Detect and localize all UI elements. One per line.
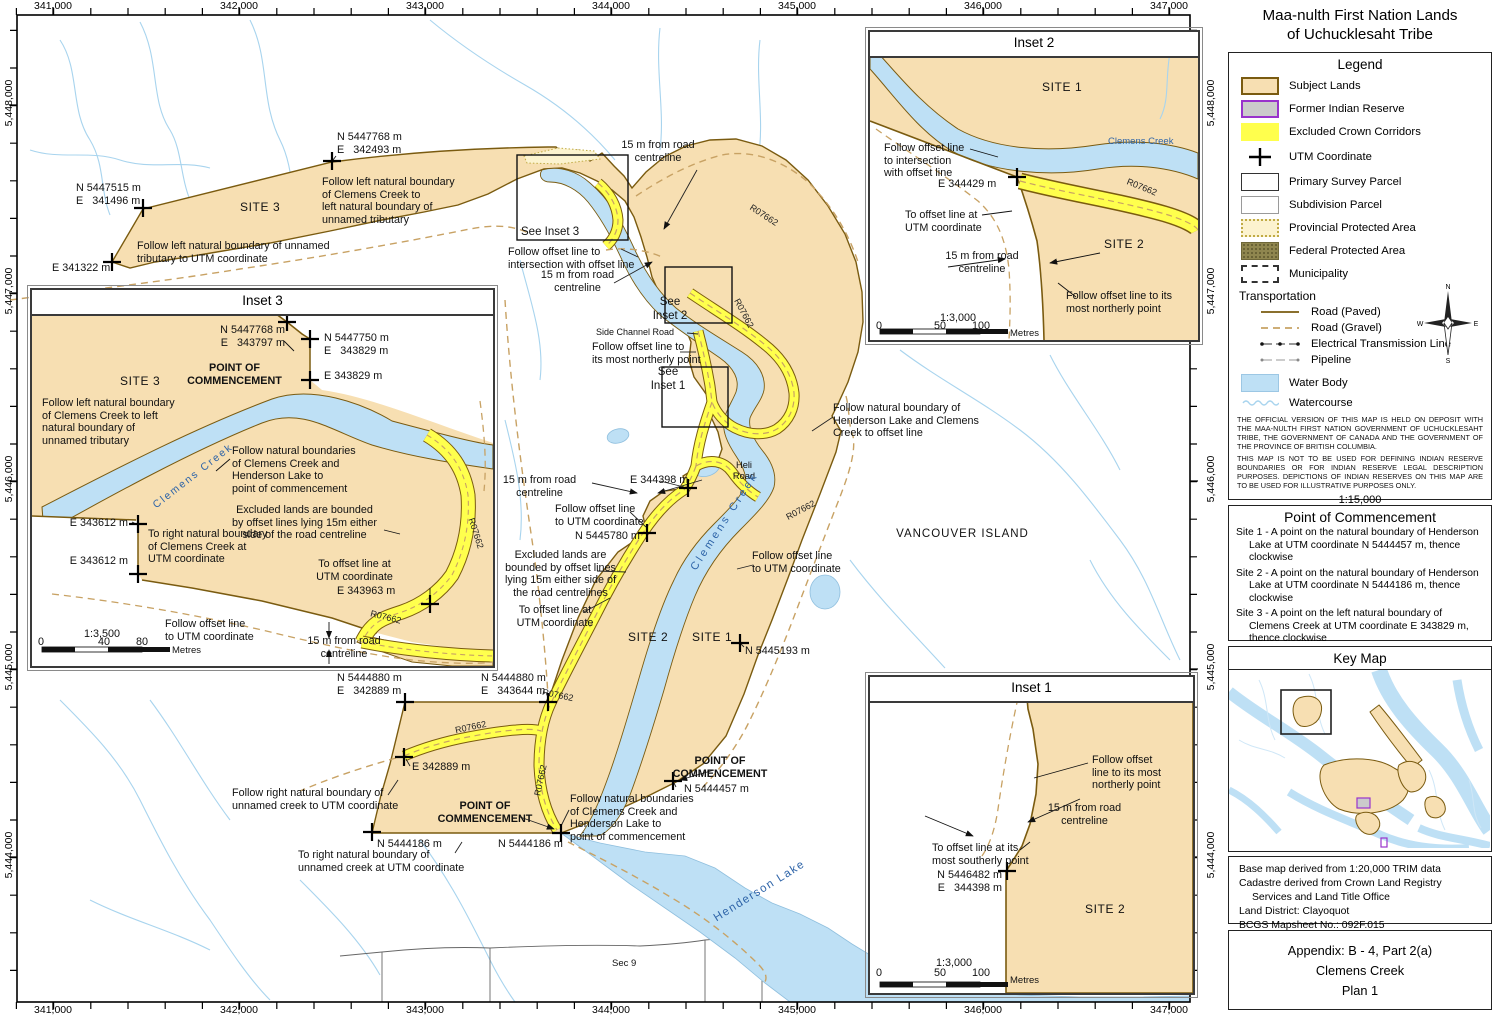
note-to-offset-utm: To offset line at UTM coordinate	[505, 604, 605, 629]
inset3-title: Inset 3	[32, 290, 493, 316]
x-tick: 342,000	[209, 1004, 269, 1016]
note-15m: 15 m from road centreline	[294, 635, 394, 660]
note-to-offset: To offset line at UTM coordinate	[287, 558, 422, 583]
see-inset1-label: See Inset 1	[648, 366, 688, 393]
base-info-line: Land District: Clayoquot	[1239, 905, 1483, 919]
utm-label: N 5445193 m	[745, 645, 810, 658]
appendix-line2: Clemens Creek	[1229, 961, 1491, 981]
legend-item-label: Former Indian Reserve	[1289, 103, 1405, 115]
legend-item-label: Road (Paved)	[1311, 306, 1381, 318]
utm-label: N 5447515 m E 341496 m	[76, 182, 141, 207]
disclaimer-1: THE OFFICIAL VERSION OF THIS MAP IS HELD…	[1229, 412, 1491, 451]
poc-label: POINT OF COMMENCEMENT	[172, 362, 297, 387]
y-tick: 5,446,000	[3, 449, 15, 509]
inset1-canvas	[870, 698, 1193, 993]
note-follow-offset: Follow offset line to UTM coordinate	[165, 618, 254, 643]
utm-label: E 343963 m	[337, 585, 395, 598]
legend-item-label: Water Body	[1289, 377, 1348, 389]
key-map-title: Key Map	[1229, 647, 1491, 670]
legend-item-label: Pipeline	[1311, 354, 1351, 366]
sec9-label: Sec 9	[612, 958, 636, 969]
site1-label: SITE 1	[692, 630, 732, 644]
legend-item-label: Municipality	[1289, 268, 1348, 280]
x-tick: 346,000	[953, 1004, 1013, 1016]
note-follow-nat: Follow natural boundaries of Clemens Cre…	[232, 445, 356, 496]
base-info-line: Base map derived from 1:20,000 TRIM data	[1239, 863, 1483, 877]
note-excluded: Excluded lands are bounded by offset lin…	[217, 504, 392, 542]
note-follow-int: Follow offset line to intersection with …	[884, 142, 964, 180]
y-tick: 5,445,000	[1205, 637, 1217, 697]
subject-lands-swatch	[1241, 77, 1279, 95]
utm-label: E 343829 m	[324, 370, 382, 383]
svg-text:W: W	[1417, 321, 1424, 328]
utm-label: E 344429 m	[938, 178, 996, 191]
legend-item-subject-lands: Subject Lands	[1229, 74, 1491, 97]
legend-item-water-body: Water Body	[1229, 368, 1491, 395]
clemens-creek-label: Clemens Creek	[1108, 136, 1173, 147]
utm-label: N 5444880 m E 342889 m	[337, 672, 402, 697]
utm-label: N 5444880 m E 343644 m	[481, 672, 546, 697]
excluded-corridor-swatch	[1241, 123, 1279, 141]
y-tick: 5,446,000	[1205, 449, 1217, 509]
scale-ratio: 1:15,000	[1229, 490, 1491, 506]
base-info-line: Cadastre derived from Crown Land Registr…	[1239, 877, 1483, 891]
y-tick: 5,447,000	[1205, 261, 1217, 321]
note-excluded-lands: Excluded lands are bounded by offset lin…	[498, 549, 623, 600]
note-follow-left: Follow left natural boundary of Clemens …	[42, 397, 175, 448]
provincial-area-swatch	[1241, 219, 1279, 237]
map-title: Maa-nulth First Nation Lands of Uchuckle…	[1228, 6, 1492, 44]
note-follow-offset-int: Follow offset line to intersection with …	[508, 246, 634, 271]
x-tick: 341,000	[23, 1004, 83, 1016]
note-follow-offset-north: Follow offset line to its most northerly…	[592, 341, 701, 366]
site2-label: SITE 2	[628, 630, 668, 644]
sec9-parcel-lines	[340, 939, 762, 1002]
disclaimer-2: THIS MAP IS NOT TO BE USED FOR DEFINING …	[1229, 451, 1491, 490]
paved-road-icon	[1259, 309, 1301, 315]
poc-title: Point of Commencement	[1229, 506, 1491, 527]
appendix-line3: Plan 1	[1229, 981, 1491, 1001]
x-tick: 345,000	[767, 0, 827, 12]
x-tick: 346,000	[953, 0, 1013, 12]
note-15m: 15 m from road centreline	[1032, 802, 1137, 827]
x-tick: 347,000	[1139, 0, 1199, 12]
legend-item-primary-parcel: Primary Survey Parcel	[1229, 170, 1491, 193]
legend-panel: Legend Subject Lands Former Indian Reser…	[1228, 52, 1492, 500]
y-tick: 5,444,000	[1205, 825, 1217, 885]
municipality-swatch	[1241, 265, 1279, 283]
legend-item-watercourse: Watercourse	[1229, 395, 1491, 412]
note-to-offset: To offset line at UTM coordinate	[905, 209, 982, 234]
legend-item-label: UTM Coordinate	[1289, 151, 1372, 163]
site1-label: SITE 1	[1042, 80, 1082, 94]
legend-item-federal-area: Federal Protected Area	[1229, 239, 1491, 262]
watercourse-icon	[1241, 398, 1279, 408]
legend-item-label: Excluded Crown Corridors	[1289, 126, 1421, 138]
vancouver-island-label: VANCOUVER ISLAND	[895, 528, 1030, 542]
note-follow-left-clemens: Follow left natural boundary of Clemens …	[322, 176, 455, 227]
utm-label: E 344398 m	[630, 474, 688, 487]
poc-site1: Site 1 - A point on the natural boundary…	[1229, 527, 1491, 568]
note-15m: 15 m from road centreline	[608, 139, 708, 164]
site3-label: SITE 3	[240, 200, 280, 214]
legend-item-label: Watercourse	[1289, 397, 1353, 409]
primary-parcel-swatch	[1241, 173, 1279, 191]
scale-tick: 100	[972, 320, 990, 333]
utm-label: E 342889 m	[412, 761, 470, 774]
note-15m: 15 m from road centreline	[932, 250, 1032, 275]
legend-item-label: Road (Gravel)	[1311, 322, 1382, 334]
svg-text:S: S	[1446, 358, 1451, 365]
poc-site3: Site 3 - A point on the left natural bou…	[1229, 608, 1491, 649]
scale-tick: 0	[38, 636, 44, 649]
legend-item-label: Provincial Protected Area	[1289, 222, 1416, 234]
legend-item-provincial-area: Provincial Protected Area	[1229, 216, 1491, 239]
note-follow-left-unnamed: Follow left natural boundary of unnamed …	[137, 240, 330, 265]
x-tick: 347,000	[1139, 1004, 1199, 1016]
note-follow-nat-hend: Follow natural boundary of Henderson Lak…	[833, 402, 979, 440]
poc-label: POINT OF COMMENCEMENT	[425, 800, 545, 825]
poc-panel: Point of Commencement Site 1 - A point o…	[1228, 505, 1492, 641]
appendix-line1: Appendix: B - 4, Part 2(a)	[1229, 941, 1491, 961]
note-to-offset: To offset line at its most southerly poi…	[932, 842, 1029, 867]
y-tick: 5,447,000	[3, 261, 15, 321]
x-tick: 343,000	[395, 1004, 455, 1016]
note-15m: 15 m from road centreline	[492, 474, 587, 499]
y-tick: 5,448,000	[1205, 73, 1217, 133]
utm-label: E 343612 m	[60, 555, 128, 568]
scale-tick: 50	[934, 967, 946, 980]
note-follow-offset-utm: Follow offset line to UTM coordinate	[752, 550, 841, 575]
utm-label: N 5446482 m E 344398 m	[926, 869, 1002, 894]
utm-label: N 5447768 m E 343797 m	[207, 324, 285, 349]
x-tick: 343,000	[395, 0, 455, 12]
note-follow-offset: Follow offset line to its most northerly…	[1092, 754, 1161, 792]
note-to-right-unnamed: To right natural boundary of unnamed cre…	[298, 849, 464, 874]
side-channel-road-label: Side Channel Road	[596, 327, 674, 338]
site3-label: SITE 3	[120, 374, 160, 388]
appendix-text: Appendix: B - 4, Part 2(a) Clemens Creek…	[1229, 931, 1491, 1000]
utm-label: E 343612 m	[60, 517, 128, 530]
utm-label: N 5444186 m	[498, 838, 563, 851]
poc-label: POINT OF COMMENCEMENT	[660, 755, 780, 780]
see-inset2-label: See Inset 2	[650, 296, 690, 323]
x-tick: 344,000	[581, 1004, 641, 1016]
site2-label: SITE 2	[1085, 902, 1125, 916]
x-tick: 341,000	[23, 0, 83, 12]
legend-item-utm-coordinate: UTM Coordinate	[1229, 143, 1491, 170]
inset2-title: Inset 2	[870, 32, 1198, 58]
see-inset3-label: See Inset 3	[521, 226, 579, 240]
base-info-line: Services and Land Title Office	[1239, 891, 1483, 905]
utm-label: E 341322 m	[52, 262, 110, 275]
legend-item-excluded-corridors: Excluded Crown Corridors	[1229, 120, 1491, 143]
utm-label: N 5447750 m E 343829 m	[324, 332, 389, 357]
federal-area-swatch	[1241, 242, 1279, 260]
legend-item-label: Federal Protected Area	[1289, 245, 1405, 257]
legend-item-label: Subdivision Parcel	[1289, 199, 1382, 211]
pipeline-icon	[1259, 357, 1301, 363]
key-map-panel: Key Map	[1228, 646, 1492, 852]
x-tick: 345,000	[767, 1004, 827, 1016]
y-tick: 5,448,000	[3, 73, 15, 133]
svg-text:N: N	[1445, 284, 1450, 291]
subdivision-parcel-swatch	[1241, 196, 1279, 214]
transmission-line-icon	[1259, 341, 1301, 347]
inset2-panel: Inset 2	[868, 30, 1200, 342]
legend-item-former-reserve: Former Indian Reserve	[1229, 97, 1491, 120]
map-document: { "title": {"line1": "Maa-nulth First Na…	[0, 0, 1500, 1017]
scale-tick: 100	[972, 967, 990, 980]
utm-cross-icon	[1241, 146, 1279, 168]
scale-tick: 50	[934, 320, 946, 333]
map-title-line2: of Uchucklesaht Tribe	[1228, 25, 1492, 44]
utm-label: N 5445780 m	[575, 530, 640, 543]
site2-label: SITE 2	[1104, 237, 1144, 251]
x-tick: 342,000	[209, 0, 269, 12]
scale-unit: Metres	[1010, 328, 1039, 339]
map-title-line1: Maa-nulth First Nation Lands	[1228, 6, 1492, 25]
note-follow-right-unnamed: Follow right natural boundary of unnamed…	[232, 787, 398, 812]
scale-tick: 0	[876, 967, 882, 980]
x-tick: 344,000	[581, 0, 641, 12]
utm-label: N 5444457 m	[684, 783, 749, 796]
legend-title: Legend	[1229, 53, 1491, 74]
note-follow-north: Follow offset line to its most northerly…	[1066, 290, 1172, 315]
inset1-title: Inset 1	[870, 677, 1193, 703]
scale-tick: 80	[136, 636, 148, 649]
note-15m: 15 m from road centreline	[530, 269, 625, 294]
poc-site2: Site 2 - A point on the natural boundary…	[1229, 568, 1491, 609]
scale-tick: 0	[876, 320, 882, 333]
inset1-panel: Inset 1 Follow offset line to its most n…	[868, 675, 1195, 995]
note-follow-offset-utm: Follow offset line to UTM coordinate	[555, 503, 644, 528]
water-body-swatch	[1241, 374, 1279, 392]
appendix-panel: Appendix: B - 4, Part 2(a) Clemens Creek…	[1228, 930, 1492, 1010]
compass-rose-icon: N W E S	[1417, 281, 1479, 365]
scale-unit: Metres	[172, 645, 201, 656]
legend-item-label: Primary Survey Parcel	[1289, 176, 1401, 188]
y-tick: 5,444,000	[3, 825, 15, 885]
former-reserve-swatch	[1241, 100, 1279, 118]
base-info-panel: Base map derived from 1:20,000 TRIM data…	[1228, 856, 1492, 924]
y-tick: 5,445,000	[3, 637, 15, 697]
gravel-road-icon	[1259, 325, 1301, 331]
legend-item-label: Subject Lands	[1289, 80, 1361, 92]
note-follow-nat-bound: Follow natural boundaries of Clemens Cre…	[570, 793, 694, 844]
scale-unit: Metres	[1010, 975, 1039, 986]
svg-text:E: E	[1474, 321, 1479, 328]
scale-tick: 40	[98, 636, 110, 649]
key-map-canvas	[1229, 670, 1490, 848]
legend-item-subdivision-parcel: Subdivision Parcel	[1229, 193, 1491, 216]
inset3-panel: Inset 3	[30, 288, 495, 668]
utm-label: N 5447768 m E 342493 m	[337, 131, 402, 156]
